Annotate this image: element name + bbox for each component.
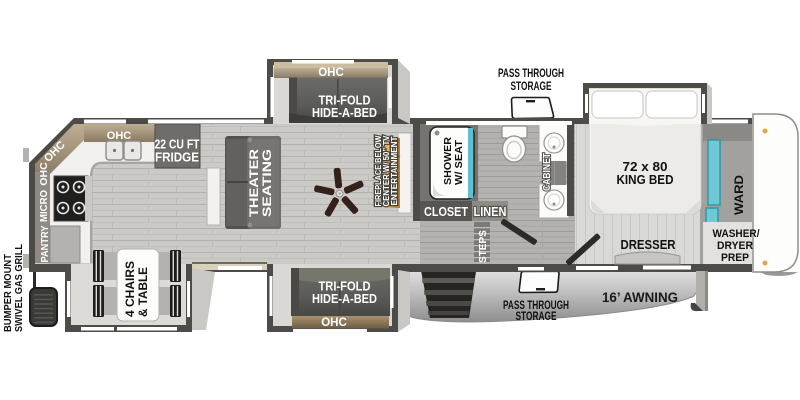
svg-text:OHC: OHC xyxy=(321,317,347,329)
svg-text:DRYER: DRYER xyxy=(717,240,753,252)
svg-text:FRIDGE: FRIDGE xyxy=(155,150,199,165)
svg-text:SEATING: SEATING xyxy=(260,149,274,217)
svg-text:W/ SEAT: W/ SEAT xyxy=(453,139,465,185)
svg-text:OHC: OHC xyxy=(38,162,50,186)
svg-text:PANTRY: PANTRY xyxy=(39,226,51,263)
svg-text:16’ AWNING: 16’ AWNING xyxy=(602,290,678,305)
svg-text:& TABLE: & TABLE xyxy=(136,267,150,317)
svg-text:STEPS: STEPS xyxy=(478,230,489,263)
svg-text:DRESSER: DRESSER xyxy=(621,238,676,252)
svg-text:KING BED: KING BED xyxy=(617,173,674,187)
svg-text:CABINET: CABINET xyxy=(542,153,553,191)
svg-text:STORAGE: STORAGE xyxy=(516,309,557,323)
svg-text:HIDE-A-BED: HIDE-A-BED xyxy=(312,105,377,120)
svg-text:FIREPLACE BELOW: FIREPLACE BELOW xyxy=(373,135,383,207)
svg-text:MICRO: MICRO xyxy=(38,190,50,222)
svg-text:HIDE-A-BED: HIDE-A-BED xyxy=(312,291,377,306)
svg-text:PASS THROUGH: PASS THROUGH xyxy=(498,66,564,80)
svg-text:WASHER/: WASHER/ xyxy=(713,228,760,240)
svg-text:THEATER: THEATER xyxy=(247,149,261,217)
svg-text:LINEN: LINEN xyxy=(474,205,507,219)
svg-text:72 x 80: 72 x 80 xyxy=(623,160,668,174)
svg-text:OHC: OHC xyxy=(107,130,132,142)
svg-text:OHC: OHC xyxy=(318,67,344,79)
svg-text:4 CHAIRS: 4 CHAIRS xyxy=(123,261,137,317)
svg-text:STORAGE: STORAGE xyxy=(511,79,552,93)
svg-text:WARD: WARD xyxy=(734,175,746,215)
svg-text:CLOSET: CLOSET xyxy=(424,205,468,219)
svg-text:PREP: PREP xyxy=(721,252,749,264)
